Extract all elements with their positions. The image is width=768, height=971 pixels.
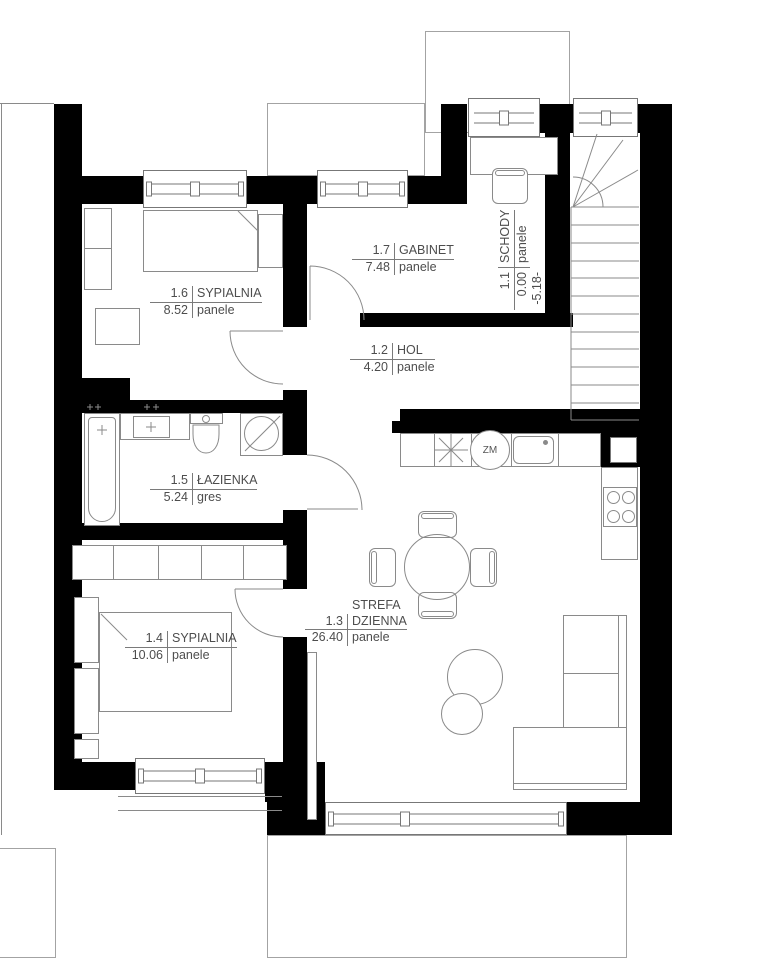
window-cap xyxy=(238,182,244,197)
dining-chair-west xyxy=(369,548,396,587)
room-number: 1.3 xyxy=(305,614,348,630)
window-bedroom14 xyxy=(135,758,265,794)
room-number: 1.2 xyxy=(350,343,393,359)
sink-tap-dot xyxy=(543,440,548,445)
desk-bedroom16 xyxy=(95,308,140,345)
room-level: -5.18- xyxy=(530,268,546,310)
wall-bedroom4-bottom-left xyxy=(82,762,135,790)
duct-niche xyxy=(610,437,637,463)
label-line1: 1.3DZIENNA xyxy=(305,614,407,631)
door-arc-bedroom16 xyxy=(230,331,283,384)
room-area: 0.00 xyxy=(515,267,531,310)
window-gabinet xyxy=(317,170,408,208)
sofa-chaise xyxy=(513,727,627,790)
window-mullion xyxy=(400,811,410,826)
stair-winder-lines xyxy=(573,134,638,207)
washing-machine-drum xyxy=(244,416,279,451)
toilet-bowl xyxy=(193,425,219,453)
dining-chair-east xyxy=(470,548,497,587)
label-line0: STREFA xyxy=(305,598,407,614)
room-floor: panele xyxy=(197,303,235,319)
room-area: 5.24 xyxy=(150,490,193,506)
wall-divider-mid1 xyxy=(283,390,307,455)
room-name: SYPIALNIA xyxy=(172,631,237,647)
label-line2: 4.20panele xyxy=(350,360,435,376)
room-floor: panele xyxy=(352,630,390,646)
window-mullion xyxy=(195,769,205,784)
room-label-1-3: STREFA 1.3DZIENNA 26.40panele xyxy=(305,598,407,646)
counter-divider xyxy=(511,434,512,466)
label-line2: 7.48panele xyxy=(352,260,454,276)
room-number: 1.4 xyxy=(125,631,168,647)
hob-burner xyxy=(607,510,620,523)
room-label-1-2: 1.2HOL 4.20panele xyxy=(350,343,435,375)
room-name: GABINET xyxy=(399,243,454,259)
room-number: 1.5 xyxy=(150,473,193,489)
window-mullion xyxy=(190,182,200,197)
sofa-chaise-backrest xyxy=(513,783,627,790)
room-label-1-4: 1.4SYPIALNIA 10.06panele xyxy=(125,631,237,663)
neighbor-line-left xyxy=(1,103,2,835)
window-mullion xyxy=(601,110,611,125)
room-number: 1.7 xyxy=(352,243,395,259)
wall-bathroom-top xyxy=(82,400,283,413)
nightstand xyxy=(74,739,99,759)
window-cap xyxy=(256,769,262,784)
wall-right-exterior xyxy=(640,104,672,802)
window-cap xyxy=(138,769,144,784)
kitchen-sink xyxy=(513,436,554,464)
tv-stand xyxy=(307,652,317,820)
room-floor: gres xyxy=(197,490,221,506)
pillow-bedroom16 xyxy=(258,214,283,268)
window-cap xyxy=(328,811,334,826)
room-name-prefix: STREFA xyxy=(352,598,401,614)
window-stairs xyxy=(573,98,638,137)
counter-divider xyxy=(558,434,559,466)
label-line1: 1.2HOL xyxy=(350,343,435,360)
chair-back xyxy=(421,611,454,617)
chair-back xyxy=(489,551,495,584)
room-floor: panele xyxy=(172,648,210,664)
room-label-1-7: 1.7GABINET 7.48panele xyxy=(352,243,454,275)
wall-divider-upper xyxy=(283,204,307,327)
label-line1: 1.6SYPIALNIA xyxy=(150,286,262,303)
wall-gabinet-hol xyxy=(360,313,573,327)
room-name: SYPIALNIA xyxy=(197,286,262,302)
room-label-1-1: 1.1SCHODY 0.00panele -5.18- xyxy=(498,210,546,310)
dining-table xyxy=(404,534,470,600)
room-floor: panele xyxy=(515,225,531,263)
window-bedroom16 xyxy=(143,170,247,208)
chair-back xyxy=(371,551,377,584)
wardrobe-divider xyxy=(243,546,244,579)
dishwasher-label: ZM xyxy=(483,445,497,456)
room-area: 8.52 xyxy=(150,303,193,319)
neighbor-outline-bottom-left xyxy=(0,848,56,958)
label-line3: -5.18- xyxy=(530,210,546,310)
room-area: 4.20 xyxy=(350,360,393,376)
wardrobe-divider xyxy=(158,546,159,579)
label-line2: 8.52panele xyxy=(150,303,262,319)
room-name: ŁAZIENKA xyxy=(197,473,257,489)
counter-divider xyxy=(434,434,435,466)
room-label-1-6: 1.6SYPIALNIA 8.52panele xyxy=(150,286,262,318)
terrace-outline-bottom xyxy=(267,835,627,958)
wardrobe-bedroom14 xyxy=(72,545,287,580)
stair-treads xyxy=(571,207,639,420)
window-living xyxy=(325,802,567,835)
window-mullion xyxy=(358,182,368,197)
floor-plan: ZM xyxy=(0,0,768,971)
neighbor-outline-top-center xyxy=(267,103,425,176)
wall-top-b1 xyxy=(540,104,573,133)
hob-burner xyxy=(607,491,620,504)
hob-burner xyxy=(622,491,635,504)
room-number: 1.6 xyxy=(150,286,193,302)
sofa-cushion-line xyxy=(564,673,618,674)
room-name: SCHODY xyxy=(498,210,514,263)
window-cap xyxy=(399,182,405,197)
chair-desk xyxy=(492,168,528,204)
chair-back xyxy=(495,170,525,176)
wall-kitchen-band xyxy=(400,409,672,433)
wardrobe-divider xyxy=(85,248,111,249)
window-cap xyxy=(320,182,326,197)
label-line2: 5.24gres xyxy=(150,490,257,506)
room-name: DZIENNA xyxy=(352,614,407,630)
room-area: 26.40 xyxy=(305,630,348,646)
plant-small xyxy=(441,693,483,735)
window-mullion xyxy=(499,110,509,125)
room-area: 10.06 xyxy=(125,648,168,664)
label-line2: 26.40panele xyxy=(305,630,407,646)
room-floor: panele xyxy=(397,360,435,376)
window-sill-line xyxy=(118,810,282,811)
window-cap xyxy=(146,182,152,197)
wall-kitchen-tail xyxy=(392,421,402,433)
washbasin xyxy=(133,416,170,438)
chair-back xyxy=(421,513,454,519)
label-line1: 1.4SYPIALNIA xyxy=(125,631,237,648)
window-landing xyxy=(468,98,540,137)
window-sill-line xyxy=(118,796,282,797)
window-rail xyxy=(331,813,561,824)
label-line2: 0.00panele xyxy=(515,210,531,310)
room-floor: panele xyxy=(399,260,437,276)
room-number: 1.1 xyxy=(498,267,514,310)
dishwasher-symbol: ZM xyxy=(470,430,510,470)
hob xyxy=(603,487,637,527)
label-line1: 1.5ŁAZIENKA xyxy=(150,473,257,490)
window-cap xyxy=(558,811,564,826)
label-line1: 1.1SCHODY xyxy=(498,210,515,310)
wardrobe-bedroom16 xyxy=(84,208,112,290)
wall-bathroom-step xyxy=(82,378,130,400)
neighbor-line-top-left xyxy=(0,103,54,104)
wall-top-a2 xyxy=(247,176,317,204)
nightstand xyxy=(74,597,99,663)
hob-burner xyxy=(622,510,635,523)
bathtub-inner xyxy=(88,417,116,522)
wall-living-bottom-right xyxy=(567,802,672,835)
door-arc-bathroom xyxy=(307,455,362,510)
room-name: HOL xyxy=(397,343,423,359)
label-line2: 10.06panele xyxy=(125,648,237,664)
room-area: 7.48 xyxy=(352,260,395,276)
bed-bedroom16 xyxy=(143,210,258,272)
wall-step-up xyxy=(441,104,467,204)
wall-top-a1 xyxy=(82,176,143,204)
label-line1: 1.7GABINET xyxy=(352,243,454,260)
wall-divider-lower xyxy=(283,637,307,762)
door-arc-bedroom14 xyxy=(235,589,283,637)
room-label-1-5: 1.5ŁAZIENKA 5.24gres xyxy=(150,473,257,505)
wardrobe-divider xyxy=(201,546,202,579)
nightstand xyxy=(74,668,99,734)
toilet-flush-button xyxy=(202,415,210,423)
wardrobe-divider xyxy=(113,546,114,579)
